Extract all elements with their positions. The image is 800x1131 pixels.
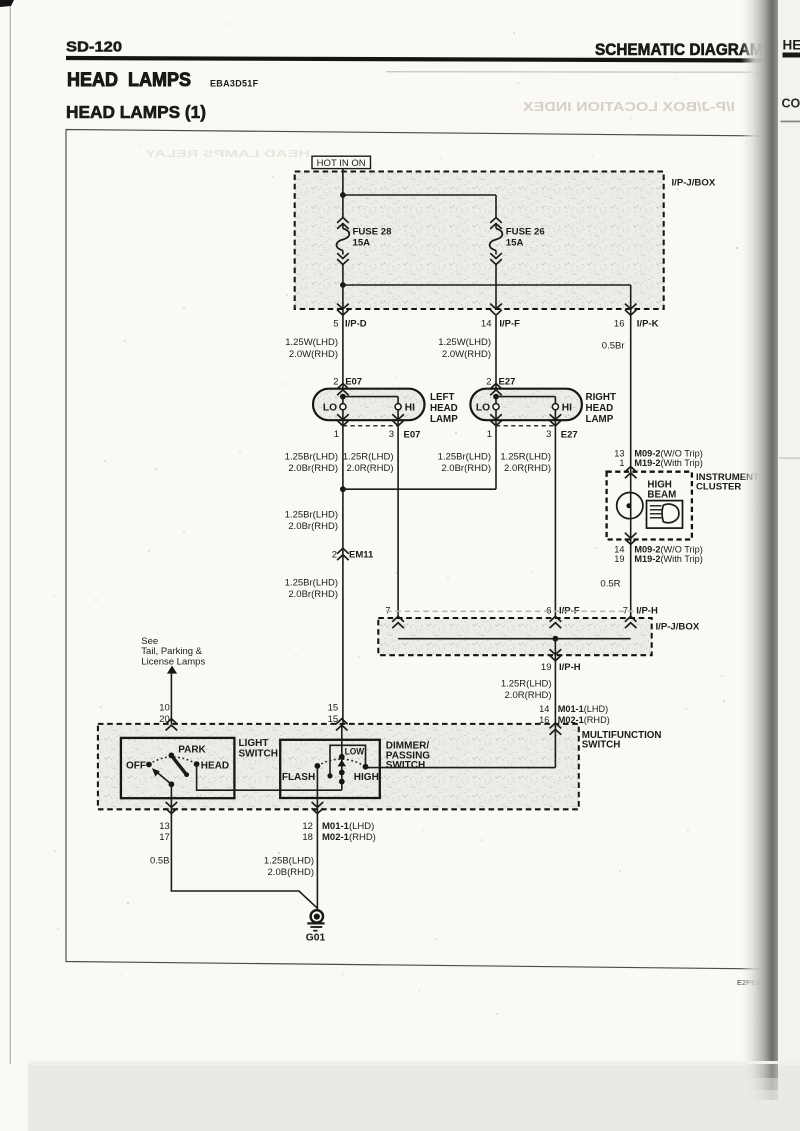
svg-text:OFF: OFF — [126, 760, 146, 771]
svg-text:2.0Br(RHD): 2.0Br(RHD) — [288, 463, 338, 474]
svg-text:2: 2 — [486, 377, 491, 388]
svg-text:10: 10 — [159, 703, 170, 714]
svg-text:0.5R: 0.5R — [600, 578, 620, 589]
svg-text:FUSE 28: FUSE 28 — [353, 227, 393, 238]
svg-text:M02-1(RHD): M02-1(RHD) — [322, 832, 376, 843]
svg-text:2.0W(RHD): 2.0W(RHD) — [442, 349, 491, 360]
svg-text:0.5B: 0.5B — [150, 856, 170, 867]
svg-text:19: 19 — [541, 662, 552, 673]
svg-text:2: 2 — [332, 550, 337, 561]
svg-text:18: 18 — [302, 832, 313, 843]
svg-text:15: 15 — [328, 703, 339, 714]
svg-text:I/P-J/BOX: I/P-J/BOX — [672, 178, 716, 189]
svg-text:2.0B(RHD): 2.0B(RHD) — [268, 867, 314, 878]
svg-text:HEAD LAMPS RELAY: HEAD LAMPS RELAY — [145, 148, 310, 160]
svg-text:LAMP: LAMP — [430, 414, 458, 425]
svg-text:1.25Br(LHD): 1.25Br(LHD) — [438, 452, 491, 463]
svg-text:15A: 15A — [353, 238, 371, 249]
svg-text:2.0R(RHD): 2.0R(RHD) — [504, 463, 551, 474]
svg-text:2: 2 — [333, 377, 338, 388]
svg-text:SD-120: SD-120 — [66, 40, 122, 56]
svg-text:1.25W(LHD): 1.25W(LHD) — [285, 337, 338, 348]
svg-text:2.0R(RHD): 2.0R(RHD) — [505, 690, 552, 701]
svg-text:FUSE 26: FUSE 26 — [506, 227, 545, 238]
svg-text:I/P-J/BOX LOCATION INDEX: I/P-J/BOX LOCATION INDEX — [522, 100, 735, 114]
svg-text:HI: HI — [562, 403, 572, 414]
svg-text:2.0W(RHD): 2.0W(RHD) — [289, 349, 338, 360]
svg-text:E07: E07 — [404, 430, 421, 441]
svg-text:PARK: PARK — [178, 744, 206, 755]
svg-text:HI: HI — [405, 403, 415, 414]
svg-text:1.25R(LHD): 1.25R(LHD) — [501, 678, 552, 689]
svg-text:RIGHT: RIGHT — [586, 392, 616, 403]
svg-text:1.25Br(LHD): 1.25Br(LHD) — [285, 452, 338, 463]
svg-text:14: 14 — [539, 704, 549, 714]
svg-text:2.0Br(RHD): 2.0Br(RHD) — [288, 521, 338, 532]
svg-text:1.25B(LHD): 1.25B(LHD) — [264, 856, 314, 867]
svg-text:FLASH: FLASH — [282, 772, 315, 783]
svg-text:19: 19 — [614, 554, 624, 564]
svg-text:14: 14 — [481, 318, 492, 329]
svg-text:M01-1(LHD): M01-1(LHD) — [322, 821, 374, 832]
svg-text:HEAD LAMPS: HEAD LAMPS — [67, 70, 191, 91]
svg-text:2.0R(RHD): 2.0R(RHD) — [347, 463, 394, 474]
svg-text:13: 13 — [159, 821, 170, 832]
svg-text:1.25Br(LHD): 1.25Br(LHD) — [285, 510, 338, 521]
svg-text:1.25Br(LHD): 1.25Br(LHD) — [285, 578, 338, 589]
svg-text:CLUSTER: CLUSTER — [696, 482, 741, 493]
svg-text:M19-2(With Trip): M19-2(With Trip) — [634, 554, 702, 564]
svg-text:1.25R(LHD): 1.25R(LHD) — [500, 452, 551, 463]
svg-text:12: 12 — [302, 821, 313, 832]
svg-text:HIGH: HIGH — [354, 772, 379, 783]
svg-text:HEAD: HEAD — [586, 403, 614, 414]
svg-text:M01-1(LHD): M01-1(LHD) — [558, 704, 609, 714]
svg-text:HE: HE — [783, 38, 800, 53]
svg-text:17: 17 — [159, 832, 170, 843]
svg-text:SWITCH: SWITCH — [386, 760, 425, 771]
svg-text:I/P-H: I/P-H — [559, 662, 581, 673]
svg-text:3: 3 — [389, 429, 394, 440]
svg-text:I/P-F: I/P-F — [499, 318, 520, 329]
svg-text:HEAD LAMPS (1): HEAD LAMPS (1) — [66, 102, 206, 122]
svg-text:0.5Br: 0.5Br — [602, 340, 625, 351]
svg-text:M19-2(With Trip): M19-2(With Trip) — [634, 458, 702, 468]
svg-text:2.0Br(RHD): 2.0Br(RHD) — [288, 589, 338, 600]
svg-text:LO: LO — [476, 403, 490, 414]
svg-text:EM11: EM11 — [349, 550, 374, 561]
svg-text:LO: LO — [323, 403, 337, 414]
svg-text:HOT IN ON: HOT IN ON — [317, 157, 366, 168]
svg-text:3: 3 — [546, 429, 551, 440]
svg-text:I/P-K: I/P-K — [637, 318, 659, 329]
svg-text:CO: CO — [782, 97, 800, 111]
svg-text:LEFT: LEFT — [430, 392, 455, 403]
svg-text:LIGHT: LIGHT — [239, 738, 269, 749]
svg-text:1: 1 — [334, 429, 339, 440]
svg-text:E07: E07 — [345, 377, 362, 388]
svg-text:E27: E27 — [561, 430, 578, 441]
svg-text:1.25R(LHD): 1.25R(LHD) — [343, 452, 394, 463]
svg-text:LAMP: LAMP — [586, 414, 614, 425]
svg-text:16: 16 — [614, 318, 625, 329]
svg-text:1.25W(LHD): 1.25W(LHD) — [438, 337, 491, 348]
svg-text:2.0Br(RHD): 2.0Br(RHD) — [441, 463, 491, 474]
svg-text:SWITCH: SWITCH — [239, 749, 278, 760]
svg-text:HEAD: HEAD — [430, 403, 458, 414]
svg-text:HEAD: HEAD — [201, 760, 229, 771]
svg-text:5: 5 — [333, 318, 338, 329]
svg-text:G01: G01 — [306, 932, 326, 943]
svg-text:BEAM: BEAM — [647, 489, 676, 500]
svg-text:SWITCH: SWITCH — [582, 739, 621, 750]
svg-text:E27: E27 — [499, 377, 516, 388]
svg-text:I/P-D: I/P-D — [345, 318, 367, 329]
svg-text:15A: 15A — [506, 238, 524, 249]
svg-text:EBA3D51F: EBA3D51F — [210, 79, 259, 89]
svg-text:1: 1 — [487, 429, 492, 440]
svg-text:I/P-H: I/P-H — [636, 605, 658, 616]
svg-text:1: 1 — [619, 458, 624, 468]
svg-text:License Lamps: License Lamps — [141, 656, 205, 667]
svg-text:I/P-J/BOX: I/P-J/BOX — [656, 622, 700, 633]
svg-text:LOW: LOW — [345, 746, 365, 756]
